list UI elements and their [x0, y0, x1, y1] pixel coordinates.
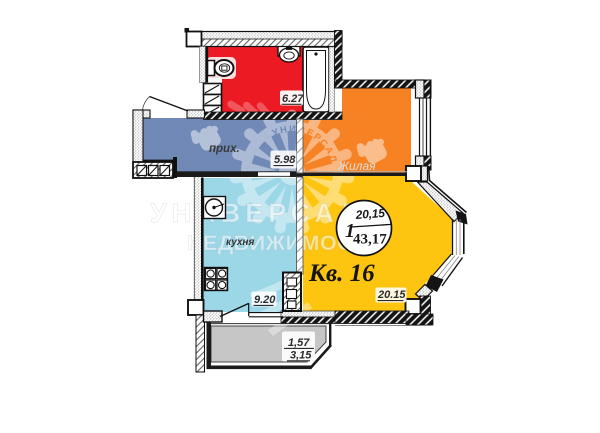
- svg-text:Кв. 16: Кв. 16: [308, 260, 375, 287]
- svg-text:Жилая: Жилая: [337, 159, 376, 173]
- svg-text:5.98: 5.98: [274, 154, 296, 166]
- svg-text:УНИВЕРСАЛ: УНИВЕРСАЛ: [150, 198, 363, 228]
- svg-text:кухня: кухня: [226, 237, 254, 248]
- svg-text:прих.: прих.: [209, 143, 240, 155]
- svg-text:6.27: 6.27: [282, 93, 304, 105]
- svg-text:1,57: 1,57: [288, 337, 310, 349]
- svg-text:3,15: 3,15: [290, 350, 312, 362]
- svg-text:20.15: 20.15: [377, 289, 406, 301]
- svg-text:20,15: 20,15: [354, 206, 385, 222]
- svg-text:9.20: 9.20: [254, 294, 276, 306]
- svg-text:43,17: 43,17: [353, 232, 387, 248]
